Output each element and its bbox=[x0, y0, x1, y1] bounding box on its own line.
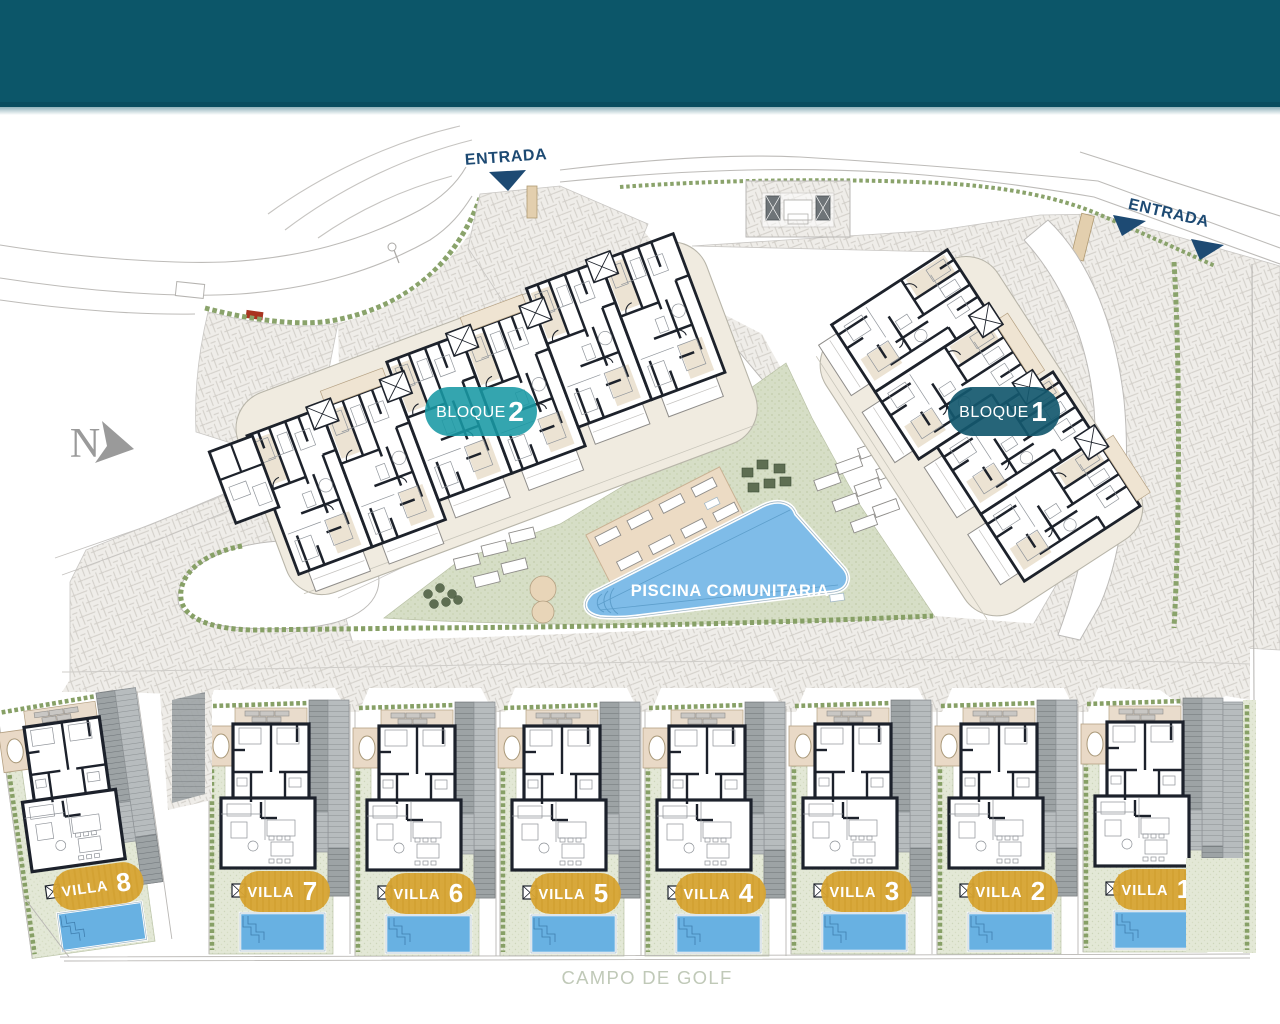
svg-text:3: 3 bbox=[885, 876, 899, 906]
svg-text:VILLA: VILLA bbox=[1122, 883, 1169, 899]
svg-text:CAMPO DE GOLF: CAMPO DE GOLF bbox=[561, 967, 732, 988]
svg-text:BLOQUE: BLOQUE bbox=[436, 404, 506, 421]
svg-text:BLOQUE: BLOQUE bbox=[959, 404, 1029, 421]
svg-text:2: 2 bbox=[508, 396, 524, 427]
svg-text:N: N bbox=[70, 421, 100, 467]
svg-text:VILLA: VILLA bbox=[394, 887, 441, 903]
svg-text:VILLA: VILLA bbox=[248, 885, 295, 901]
svg-text:1: 1 bbox=[1031, 396, 1047, 427]
svg-text:2: 2 bbox=[1031, 876, 1045, 906]
svg-text:VILLA: VILLA bbox=[830, 885, 877, 901]
svg-text:VILLA: VILLA bbox=[684, 887, 731, 903]
svg-text:5: 5 bbox=[594, 878, 608, 908]
svg-text:VILLA: VILLA bbox=[976, 885, 1023, 901]
svg-text:7: 7 bbox=[303, 876, 317, 906]
svg-text:6: 6 bbox=[449, 878, 463, 908]
svg-text:4: 4 bbox=[739, 878, 754, 908]
svg-text:VILLA: VILLA bbox=[539, 887, 586, 903]
svg-text:PISCINA COMUNITARIA: PISCINA COMUNITARIA bbox=[631, 582, 829, 600]
